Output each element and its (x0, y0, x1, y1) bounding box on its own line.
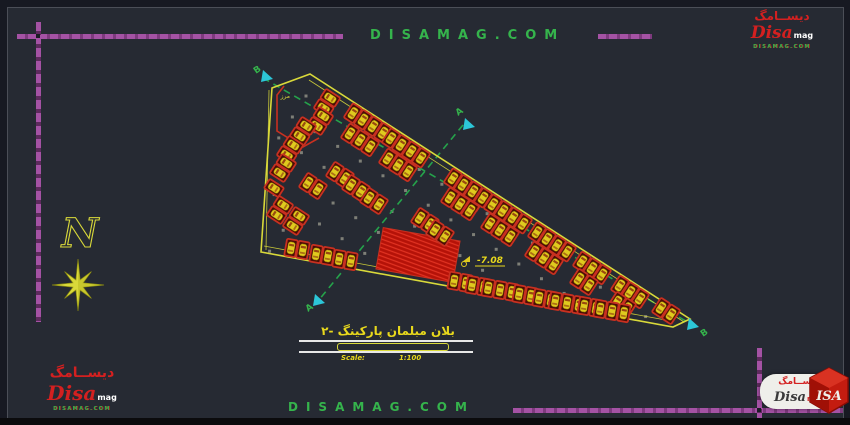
scalebar-box (337, 343, 449, 351)
svg-text:A: A (454, 106, 465, 118)
scalebar-line-top (299, 340, 473, 342)
cad-sheet: DISAMAG.COM DISAMAG.COM DISAMAG.COM دیسـ… (0, 0, 850, 425)
scalebar-line-bottom (299, 351, 473, 353)
scale-label: Scale: (341, 354, 365, 362)
svg-text:-7.08: -7.08 (477, 256, 503, 266)
svg-text:B: B (252, 64, 263, 76)
plan-title: بلان مبلمان پارکینگ -۲ (290, 324, 486, 338)
parking-plan-drawing: BAAB-7.08مرز (0, 0, 850, 425)
bottom-letterbox (0, 418, 850, 425)
svg-text:مرز: مرز (280, 93, 290, 100)
svg-text:B: B (699, 327, 710, 339)
scale-value: 1:100 (399, 354, 421, 362)
